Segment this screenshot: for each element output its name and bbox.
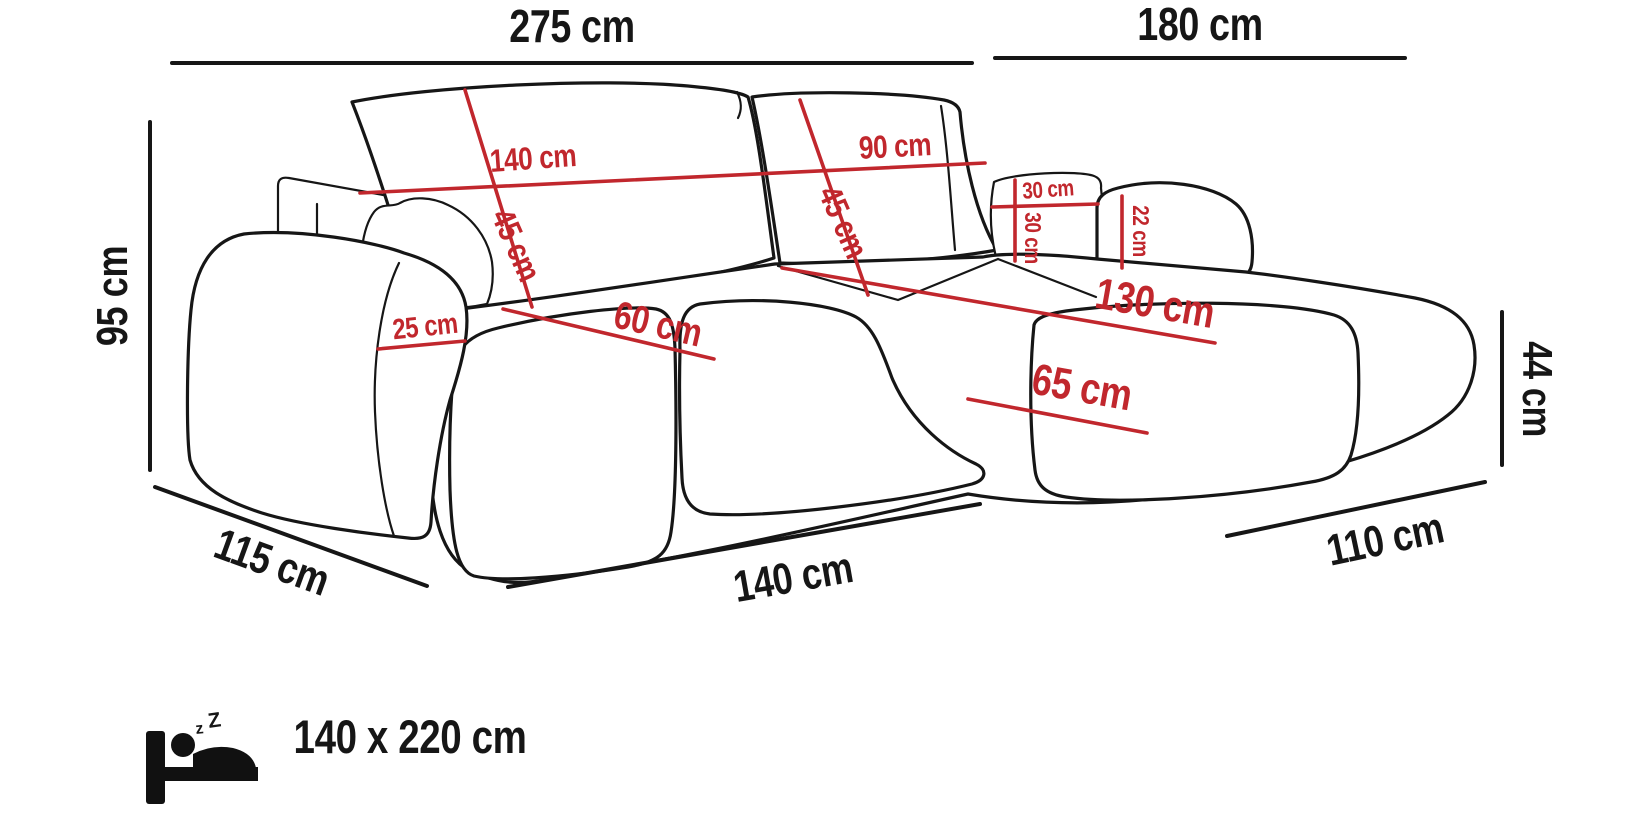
label-total-width: 275 cm bbox=[509, 0, 634, 51]
label-chaise-armrest-height: 22 cm bbox=[1128, 205, 1153, 256]
sleeper-head bbox=[171, 733, 195, 757]
sofa-dimension-diagram: 275 cm 180 cm 95 cm 44 cm 115 cm 140 cm … bbox=[0, 0, 1647, 813]
bed-base bbox=[163, 767, 258, 781]
sleeper-blanket bbox=[193, 747, 256, 768]
sofa-illustration: 275 cm 180 cm 95 cm 44 cm 115 cm 140 cm … bbox=[0, 0, 1647, 813]
label-pillow-height: 30 cm bbox=[1020, 212, 1045, 263]
label-backrest-left-width: 140 cm bbox=[489, 139, 578, 180]
label-armrest-top-width: 25 cm bbox=[391, 306, 459, 345]
sleep-z-big: Z bbox=[206, 708, 222, 733]
label-overall-height: 95 cm bbox=[88, 246, 137, 346]
label-backrest-right-width: 90 cm bbox=[858, 128, 932, 167]
label-side-depth: 115 cm bbox=[208, 519, 336, 606]
sleep-z-small: z bbox=[195, 720, 205, 738]
seat-cushion-left bbox=[450, 308, 676, 579]
label-sleeping-area: 140 x 220 cm bbox=[294, 711, 527, 763]
sleeping-bed-icon: z Z bbox=[146, 708, 258, 804]
label-chaise-total-depth: 180 cm bbox=[1137, 0, 1262, 50]
label-pillow-width: 30 cm bbox=[1022, 176, 1075, 205]
bed-headboard bbox=[146, 731, 165, 804]
armrest-left bbox=[187, 233, 467, 539]
label-front-seat-width: 140 cm bbox=[730, 543, 857, 612]
label-seat-height: 44 cm bbox=[1513, 341, 1560, 437]
back-cushion-right bbox=[752, 93, 997, 264]
